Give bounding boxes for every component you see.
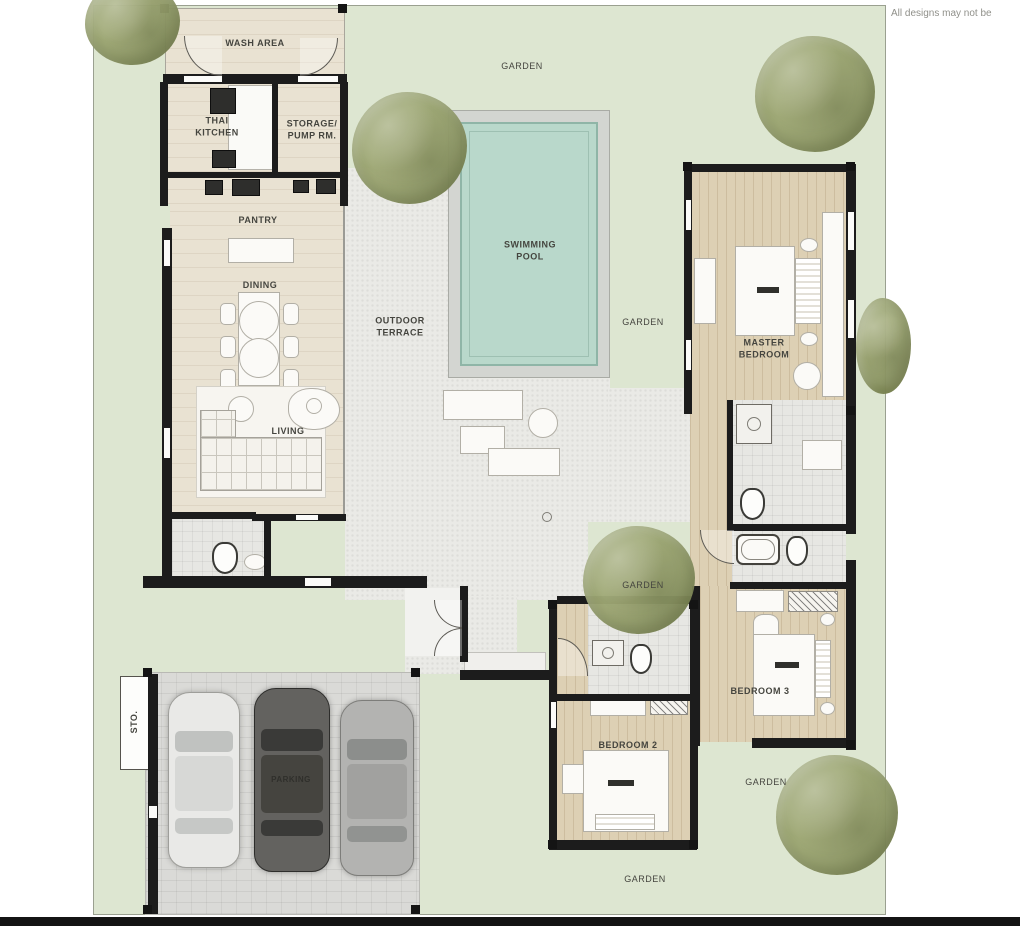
column-post xyxy=(411,905,420,914)
garden-label: GARDEN xyxy=(624,874,666,886)
wall-segment xyxy=(340,82,348,206)
wall-segment xyxy=(846,164,856,414)
master-bed-pillows xyxy=(795,258,821,324)
car-roof xyxy=(347,764,407,820)
column-post xyxy=(548,840,557,849)
entry-step xyxy=(464,652,546,672)
pantry-label: PANTRY xyxy=(239,215,278,227)
column-post xyxy=(846,740,855,749)
tree xyxy=(352,92,467,204)
nightstand xyxy=(800,238,818,252)
bed-linen-mark xyxy=(608,780,634,786)
sideboard xyxy=(228,238,294,263)
parking-label: PARKING xyxy=(271,775,311,785)
wall-segment xyxy=(264,514,271,584)
window-gap xyxy=(848,300,854,338)
dining-chair xyxy=(283,336,299,358)
swimming-pool-label: SWIMMING POOL xyxy=(497,239,563,262)
kitchen-divider-wall xyxy=(272,84,278,172)
desk xyxy=(736,590,784,612)
column-post xyxy=(143,668,152,677)
shower-head xyxy=(602,647,614,659)
bed-linen-mark xyxy=(775,662,799,668)
wall-segment xyxy=(557,694,690,701)
shower-head xyxy=(747,417,761,431)
bottom-border-bar xyxy=(0,917,1020,926)
sofa-chaise xyxy=(200,410,236,438)
bed-3-headboard xyxy=(753,614,779,635)
wall-segment xyxy=(846,560,856,750)
thai-kitchen-label: THAI KITCHEN xyxy=(189,115,245,138)
window-gap xyxy=(164,240,170,266)
counter-top-edge xyxy=(165,172,345,178)
bathtub xyxy=(736,534,780,565)
column-post xyxy=(689,600,698,609)
floor-drain xyxy=(542,512,552,522)
sofa-sectional xyxy=(200,437,322,491)
storage-label: STO. xyxy=(129,711,141,734)
bed-3-pillows xyxy=(815,640,831,698)
bed-linen-mark xyxy=(757,287,779,293)
wash-area-label: WASH AREA xyxy=(225,38,284,50)
car-rear-window xyxy=(347,826,407,842)
outdoor-sofa xyxy=(443,390,523,420)
window-gap xyxy=(149,806,157,818)
wall-segment xyxy=(166,512,256,519)
pantry-appliance-icon xyxy=(316,179,336,194)
stove-icon xyxy=(210,88,236,114)
wall-segment xyxy=(160,82,168,206)
bathtub-basin xyxy=(741,539,775,560)
bath-counter xyxy=(590,700,646,716)
door-opening xyxy=(296,515,318,520)
tree xyxy=(856,298,911,394)
pantry-range-icon xyxy=(232,179,260,196)
dining-plate xyxy=(239,338,279,378)
window-gap xyxy=(848,212,854,250)
dining-chair xyxy=(220,303,236,325)
shower xyxy=(592,640,624,666)
wall-segment xyxy=(148,774,158,914)
toilet xyxy=(212,542,238,574)
dining-chair xyxy=(283,303,299,325)
outdoor-sofa xyxy=(488,448,560,476)
bed-2-pillows xyxy=(595,814,655,830)
wardrobe xyxy=(822,212,844,397)
outdoor-chair xyxy=(528,408,558,438)
car xyxy=(168,692,240,868)
window-gap xyxy=(551,702,556,728)
washbasin xyxy=(244,554,266,570)
dresser xyxy=(694,258,716,324)
car-windshield xyxy=(175,731,234,752)
toilet xyxy=(740,488,765,520)
wall-segment xyxy=(752,738,856,748)
wall-segment xyxy=(727,524,853,531)
wall-segment xyxy=(460,670,552,680)
window-gap xyxy=(164,428,170,458)
column-post xyxy=(846,162,855,171)
outdoor-terrace-label: OUTDOOR TERRACE xyxy=(367,315,433,338)
lounge-chair-cushion xyxy=(306,398,322,414)
wall-segment xyxy=(148,674,158,774)
column-post xyxy=(338,4,347,13)
column-post xyxy=(683,162,692,171)
wall-segment xyxy=(690,606,698,844)
wall-segment xyxy=(688,164,850,172)
closet-hatch xyxy=(650,700,688,715)
door-opening xyxy=(298,76,338,82)
bath-vanity xyxy=(802,440,842,470)
terrace-extension xyxy=(608,388,690,526)
wall-segment xyxy=(727,400,733,530)
glass-wall xyxy=(343,206,345,516)
nightstand xyxy=(820,613,835,626)
nightstand xyxy=(562,764,584,794)
sink-unit-icon xyxy=(212,150,236,168)
pantry-appliance-icon xyxy=(293,180,309,193)
bedroom3-label: BEDROOM 3 xyxy=(730,686,789,698)
wall-segment xyxy=(549,840,697,850)
wall-segment xyxy=(730,582,846,589)
wall-segment xyxy=(846,414,856,534)
car-windshield xyxy=(347,739,407,760)
car-rear-window xyxy=(175,818,234,834)
wall-segment xyxy=(162,514,172,584)
column-post xyxy=(143,905,152,914)
column-post xyxy=(411,668,420,677)
garden-label: GARDEN xyxy=(501,61,543,73)
garden-label: GARDEN xyxy=(622,580,664,592)
car-roof xyxy=(175,756,234,812)
wall-segment xyxy=(162,228,172,520)
closet-hatch xyxy=(788,591,838,612)
column-post xyxy=(689,840,698,849)
living-label: LIVING xyxy=(271,426,304,438)
toilet xyxy=(786,536,808,566)
window-gap xyxy=(686,200,691,230)
window-gap xyxy=(686,340,691,370)
shower xyxy=(736,404,772,444)
dining-chair xyxy=(220,336,236,358)
door-opening xyxy=(305,578,331,586)
hallway-floor xyxy=(690,410,732,612)
door-opening xyxy=(184,76,222,82)
garden-label: GARDEN xyxy=(622,317,664,329)
car-windshield xyxy=(261,729,323,751)
column-post xyxy=(846,406,855,415)
bed-3 xyxy=(753,634,815,716)
pantry-appliance-icon xyxy=(205,180,223,195)
car-rear-window xyxy=(261,820,323,836)
vanity-basin xyxy=(793,362,821,390)
car xyxy=(340,700,414,876)
toilet xyxy=(630,644,652,674)
nightstand xyxy=(820,702,835,715)
tree xyxy=(776,755,898,875)
dining-label: DINING xyxy=(243,280,278,292)
tree xyxy=(755,36,875,152)
disclaimer-text: All designs may not be xyxy=(891,8,1019,19)
storage-pump-label: STORAGE/ PUMP RM. xyxy=(281,118,343,141)
bedroom2-label: BEDROOM 2 xyxy=(598,740,657,752)
master-bedroom-label: MASTER BEDROOM xyxy=(733,337,795,360)
wall-segment xyxy=(143,576,427,588)
column-post xyxy=(548,600,557,609)
floor-plan-page: WASH AREA THAI KITCHEN STORAGE/ PUMP RM.… xyxy=(0,0,1020,926)
nightstand xyxy=(800,332,818,346)
dining-plate xyxy=(239,301,279,341)
garden-label: GARDEN xyxy=(745,777,787,789)
